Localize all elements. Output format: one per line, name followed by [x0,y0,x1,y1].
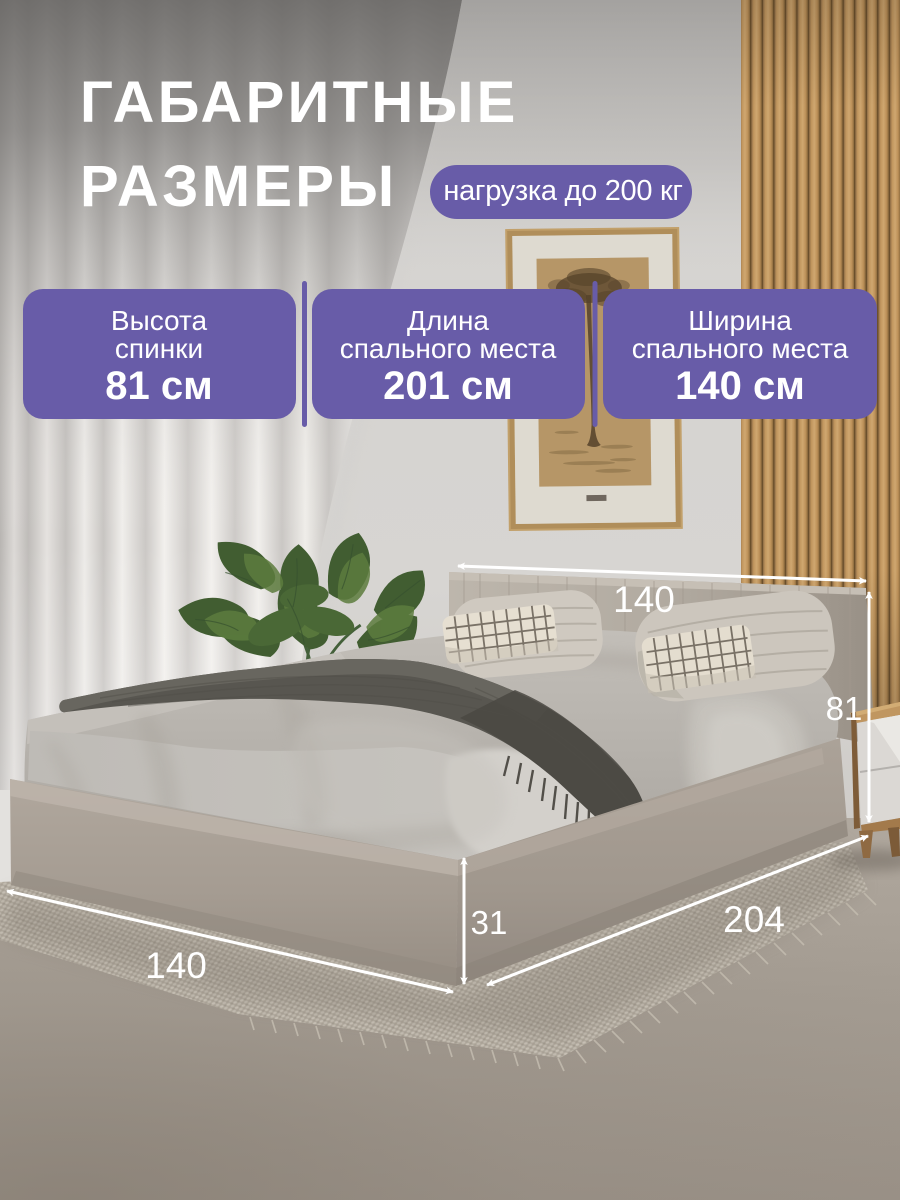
svg-text:Высота: Высота [111,305,208,336]
svg-text:140 см: 140 см [675,364,805,408]
svg-text:204: 204 [723,899,785,940]
svg-text:140: 140 [613,579,675,620]
svg-text:201 см: 201 см [383,364,513,408]
svg-text:140: 140 [145,945,207,986]
svg-text:спального места: спального места [340,333,557,364]
svg-text:спинки: спинки [115,333,203,364]
svg-text:31: 31 [471,904,508,941]
svg-text:РАЗМЕРЫ: РАЗМЕРЫ [80,154,397,219]
svg-text:81 см: 81 см [105,364,212,408]
svg-text:Длина: Длина [407,305,489,336]
svg-text:спального места: спального места [632,333,849,364]
svg-text:ГАБАРИТНЫЕ: ГАБАРИТНЫЕ [80,70,519,135]
svg-text:Ширина: Ширина [688,305,792,336]
svg-text:нагрузка до 200 кг: нагрузка до 200 кг [443,175,682,207]
svg-text:81: 81 [826,690,863,727]
